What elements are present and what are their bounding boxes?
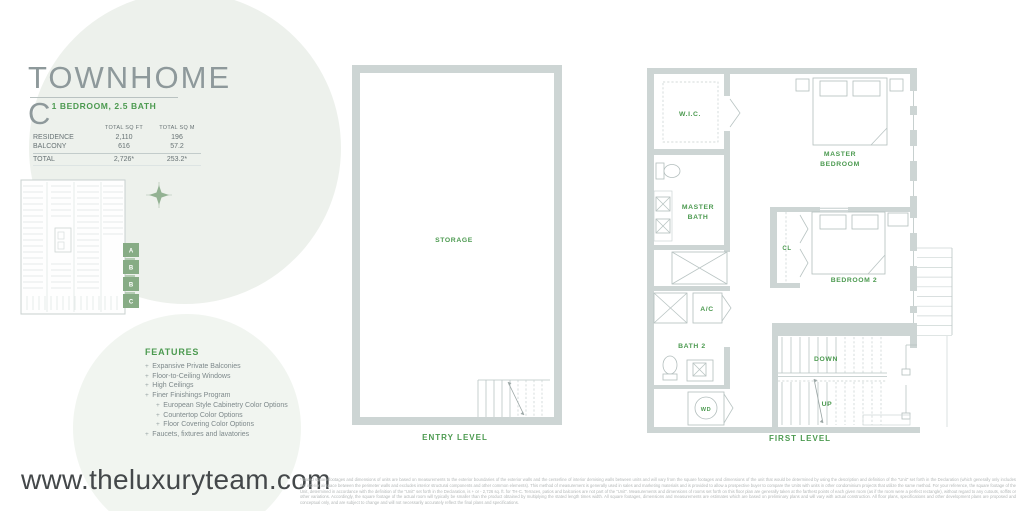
unit-b1-label: B	[129, 266, 134, 272]
title-divider	[30, 97, 178, 98]
residence-sqm: 196	[153, 132, 201, 141]
balcony-sqft: 616	[95, 142, 153, 151]
feature-subitem: European Style Cabinetry Color Options	[156, 401, 320, 411]
unit-b2-label: B	[129, 283, 134, 289]
unit-subtitle: 1 BEDROOM, 2.5 BATH	[30, 101, 178, 111]
compass-icon	[146, 182, 172, 208]
master-bedroom-label-line2: BEDROOM	[820, 161, 860, 168]
specs-row-residence: RESIDENCE 2,110 196	[33, 132, 201, 141]
first-level-floorplan: W.I.C. MASTER BATH A/C BATH 2	[630, 55, 1024, 435]
features-section: FEATURES Expansive Private Balconies Flo…	[145, 347, 320, 440]
building-key-plan: A B B C	[15, 176, 140, 321]
exterior-stair	[863, 248, 952, 427]
wic-label: W.I.C.	[679, 111, 701, 118]
residence-sqft: 2,110	[95, 132, 153, 141]
feature-item: Floor-to-Ceiling Windows	[145, 372, 320, 382]
total-sqm: 253.2*	[153, 155, 201, 164]
entry-level-floorplan: STORAGE	[340, 55, 570, 435]
wd-label: WD	[701, 407, 712, 413]
stairs-up-label: UP	[822, 401, 833, 408]
feature-item: Faucets, fixtures and lavatories	[145, 430, 320, 440]
bedroom2-bed	[812, 212, 908, 274]
master-bed	[796, 78, 903, 145]
total-label: TOTAL	[33, 155, 95, 164]
ac-closet-label: A/C	[700, 306, 714, 313]
storage-room-label: STORAGE	[435, 237, 473, 244]
total-sqft: 2,726*	[95, 155, 153, 164]
feature-item: Expansive Private Balconies	[145, 362, 320, 372]
feature-item: High Ceilings	[145, 381, 320, 391]
unit-c-label: C	[129, 300, 134, 306]
bedroom2-label: BEDROOM 2	[831, 277, 878, 284]
specs-table: TOTAL SQ FT TOTAL SQ M RESIDENCE 2,110 1…	[33, 124, 201, 166]
master-bath-fixtures	[654, 163, 680, 241]
specs-header-row: TOTAL SQ FT TOTAL SQ M	[33, 124, 201, 132]
features-list: Expansive Private Balconies Floor-to-Cei…	[145, 362, 320, 440]
balcony-label: BALCONY	[33, 142, 95, 151]
master-bedroom-label-line1: MASTER	[824, 151, 856, 158]
stairs-down-label: DOWN	[814, 356, 838, 363]
master-bath-label-line2: BATH	[688, 214, 709, 221]
specs-row-total: TOTAL 2,726* 253.2*	[33, 153, 201, 165]
feature-subitem: Countertop Color Options	[156, 411, 320, 421]
bath2-label: BATH 2	[678, 343, 706, 350]
legal-disclaimer: *Stated square footages and dimensions o…	[300, 477, 1016, 506]
residence-label: RESIDENCE	[33, 132, 95, 141]
feature-item: Finer Finishings Program	[145, 391, 320, 401]
first-level-caption: FIRST LEVEL	[630, 434, 970, 443]
specs-header-spacer	[33, 124, 95, 132]
features-heading: FEATURES	[145, 347, 320, 357]
page-title: TOWNHOME C	[28, 60, 208, 132]
entry-staircase	[478, 380, 550, 417]
entry-level-caption: ENTRY LEVEL	[340, 433, 570, 442]
bath2-fixtures	[663, 356, 713, 381]
specs-col-sqft: TOTAL SQ FT	[95, 124, 153, 132]
feature-subitem: Floor Covering Color Options	[156, 420, 320, 430]
balcony-sqm: 57.2	[153, 142, 201, 151]
closet-label: CL	[782, 246, 791, 252]
master-bath-label-line1: MASTER	[682, 204, 714, 211]
stairs-up	[778, 379, 887, 425]
specs-col-sqm: TOTAL SQ M	[153, 124, 201, 132]
website-url: www.theluxuryteam.com	[21, 464, 331, 496]
unit-a-label: A	[129, 249, 134, 255]
highlighted-units: A B B C	[123, 243, 139, 308]
flyer-page: TOWNHOME C 1 BEDROOM, 2.5 BATH TOTAL SQ …	[0, 0, 1024, 511]
specs-row-balcony: BALCONY 616 57.2	[33, 142, 201, 151]
